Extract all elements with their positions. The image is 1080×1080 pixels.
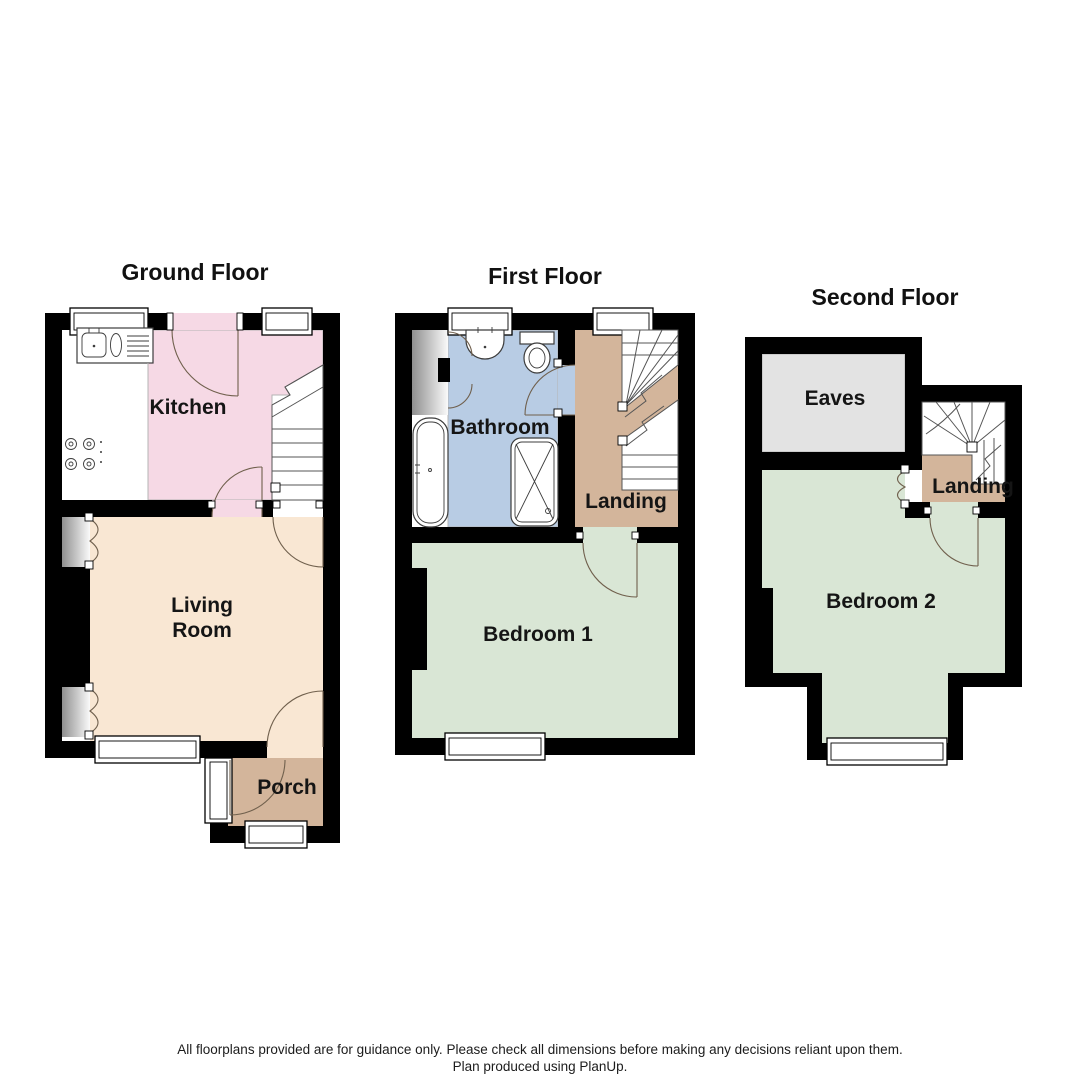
window (95, 736, 200, 763)
first-floor-title: First Floor (390, 263, 700, 290)
kitchen-label: Kitchen (149, 396, 226, 419)
kitchen-sink-unit (77, 328, 153, 363)
bedroom1-door-gap-fill (583, 527, 637, 543)
porch-label: Porch (257, 776, 317, 799)
chimney-breast (412, 568, 427, 670)
eaves-door-gap-fill (905, 470, 922, 502)
landing-label: Landing (585, 490, 667, 513)
floorplan-page: Ground Floor First Floor Second Floor (0, 0, 1080, 1080)
living-room-label-line2: Room (172, 619, 232, 642)
disclaimer-line1: All floorplans provided are for guidance… (0, 1041, 1080, 1058)
front-door-opening (172, 313, 238, 330)
ground-floor-plan: Kitchen Living Room Porch (40, 305, 350, 850)
bedroom2-door-gap-fill (930, 502, 978, 518)
window (205, 758, 232, 823)
newel-post (271, 483, 280, 492)
bathroom-door-gap-fill (558, 365, 575, 415)
alcove-recess-top (62, 517, 90, 567)
newel-post (967, 442, 977, 452)
first-floor-plan: Bathroom Landing Bedroom 1 (390, 305, 700, 765)
window (445, 733, 545, 760)
disclaimer: All floorplans provided are for guidance… (0, 1041, 1080, 1075)
newel-post (618, 436, 627, 445)
window (245, 821, 307, 848)
living-porch-opening (267, 741, 323, 758)
disclaimer-line2: Plan produced using PlanUp. (0, 1058, 1080, 1075)
second-floor-title: Second Floor (740, 284, 1030, 311)
window (827, 738, 947, 765)
eaves-label: Eaves (805, 387, 866, 410)
newel-post (618, 402, 627, 411)
chimney-breast (45, 567, 90, 687)
bathroom-label: Bathroom (450, 416, 549, 439)
hob (66, 439, 103, 470)
second-floor-plan: Eaves Landing Bedroom 2 (740, 330, 1030, 770)
landing2-label: Landing (932, 475, 1014, 498)
alcove-recess-bottom (62, 687, 90, 737)
kitchen-living-opening (212, 500, 262, 517)
living-room-label-line1: Living (171, 594, 233, 617)
window (262, 308, 312, 335)
bedroom1-label: Bedroom 1 (483, 623, 593, 646)
bedroom2-label: Bedroom 2 (826, 590, 936, 613)
bathtub (413, 418, 448, 527)
ground-floor-title: Ground Floor (40, 259, 350, 286)
shower (511, 438, 558, 526)
cupboard-stub (438, 358, 450, 382)
